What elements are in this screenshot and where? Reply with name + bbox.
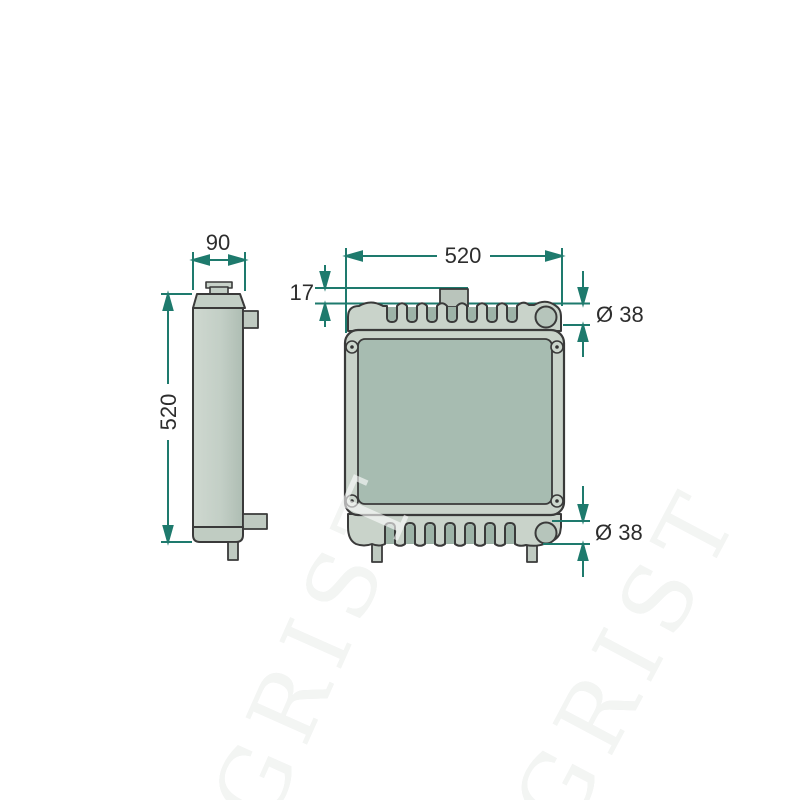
dim-top-port (563, 271, 590, 357)
front-top-port (536, 307, 557, 328)
tube-slot (386, 524, 394, 544)
dim-arrow-up (579, 544, 588, 560)
tube-slot (488, 307, 496, 321)
bottom-port-label: Ø 38 (595, 520, 643, 545)
side-view (193, 282, 267, 560)
dim-arrow-right (229, 256, 245, 265)
screw-center-dot (555, 345, 559, 349)
side-top-cap (193, 294, 245, 308)
tube-slot (468, 307, 476, 321)
neck-height-label: 17 (290, 280, 314, 305)
front-bottom-tank (348, 514, 561, 546)
radiator-dimension-drawing: 90 520 520 17 Ø 38 Ø 38 (0, 0, 800, 800)
side-body (193, 308, 243, 527)
front-core (358, 339, 552, 504)
side-width-label: 90 (206, 230, 230, 255)
tube-slot (506, 524, 514, 544)
side-bottom-port-stub (243, 514, 267, 529)
screw-center-dot (350, 345, 354, 349)
dim-arrow-up (321, 304, 330, 320)
tube-slot (446, 524, 454, 544)
screw-center-dot (555, 499, 559, 503)
dim-arrow-right (546, 252, 562, 261)
dim-arrow-down (164, 526, 173, 542)
dim-arrow-up (164, 294, 173, 310)
dim-arrow-down (579, 505, 588, 521)
dim-neck-height (321, 265, 330, 327)
dim-arrow-left (346, 252, 362, 261)
side-top-port-stub (243, 311, 258, 328)
dim-arrow-down (321, 272, 330, 288)
side-height-label: 520 (156, 394, 181, 431)
front-bottom-port (536, 523, 557, 544)
tube-slot (408, 307, 416, 321)
tube-slot (508, 307, 516, 321)
dim-arrow-up (579, 325, 588, 341)
screw-center-dot (350, 499, 354, 503)
dim-arrow-down (579, 288, 588, 304)
tube-slot (448, 307, 456, 321)
side-bottom-tank (193, 527, 243, 542)
tube-slot (428, 307, 436, 321)
tube-slot (486, 524, 494, 544)
dim-arrow-left (193, 256, 209, 265)
tube-slot (426, 524, 434, 544)
side-drain-stub (228, 542, 238, 560)
tube-slot (388, 307, 396, 321)
tube-slot (406, 524, 414, 544)
front-width-label: 520 (445, 243, 482, 268)
top-port-label: Ø 38 (596, 302, 644, 327)
front-view (345, 289, 564, 562)
tube-slot (466, 524, 474, 544)
technical-drawing-page: AGRIST AGRIST (0, 0, 800, 800)
